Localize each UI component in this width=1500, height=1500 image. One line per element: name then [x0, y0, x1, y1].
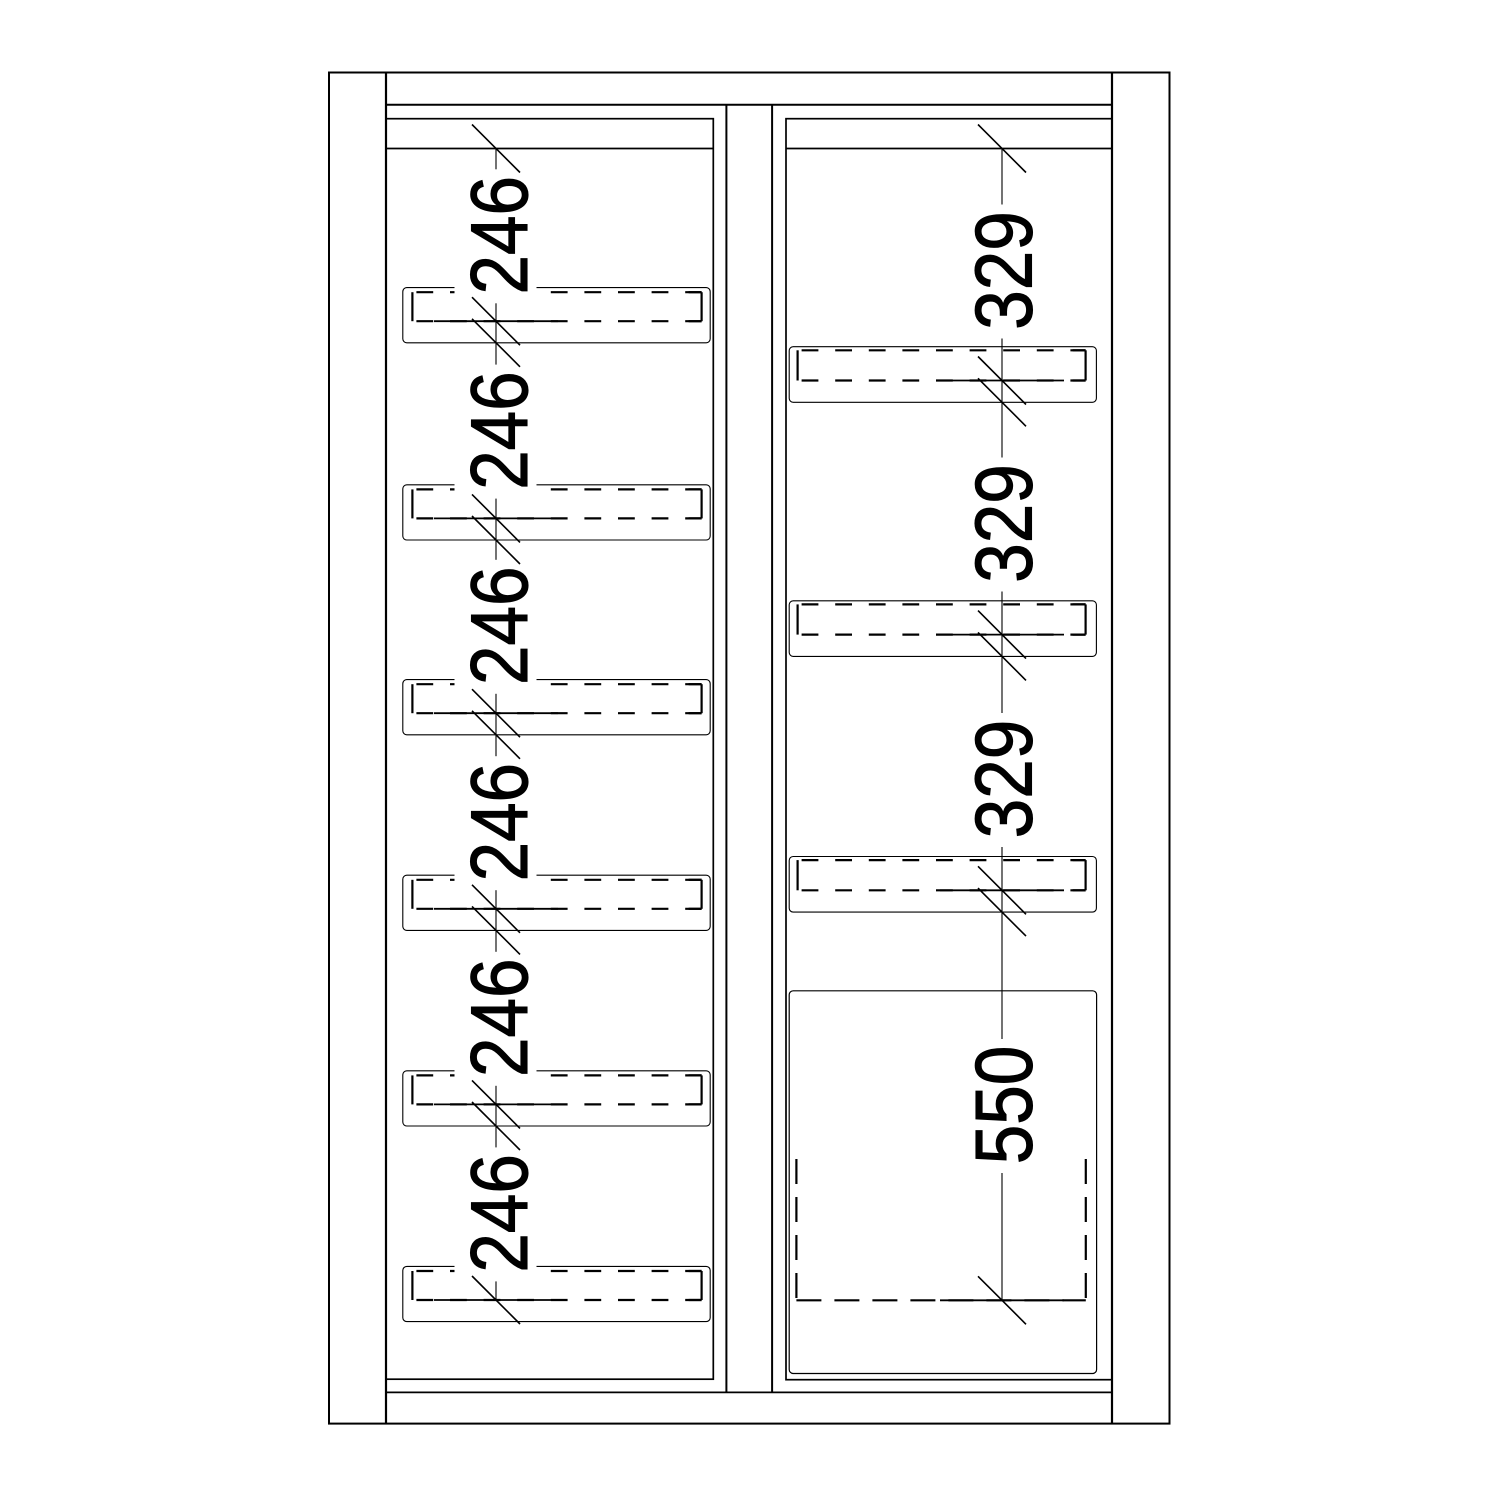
svg-text:329: 329: [959, 464, 1049, 582]
svg-text:246: 246: [455, 567, 545, 685]
svg-text:246: 246: [455, 371, 545, 489]
svg-text:246: 246: [455, 763, 545, 881]
svg-text:246: 246: [455, 1154, 545, 1272]
svg-text:329: 329: [959, 211, 1049, 329]
svg-text:246: 246: [455, 176, 545, 294]
svg-text:550: 550: [959, 1046, 1049, 1164]
svg-text:329: 329: [959, 720, 1049, 838]
svg-text:246: 246: [455, 959, 545, 1077]
